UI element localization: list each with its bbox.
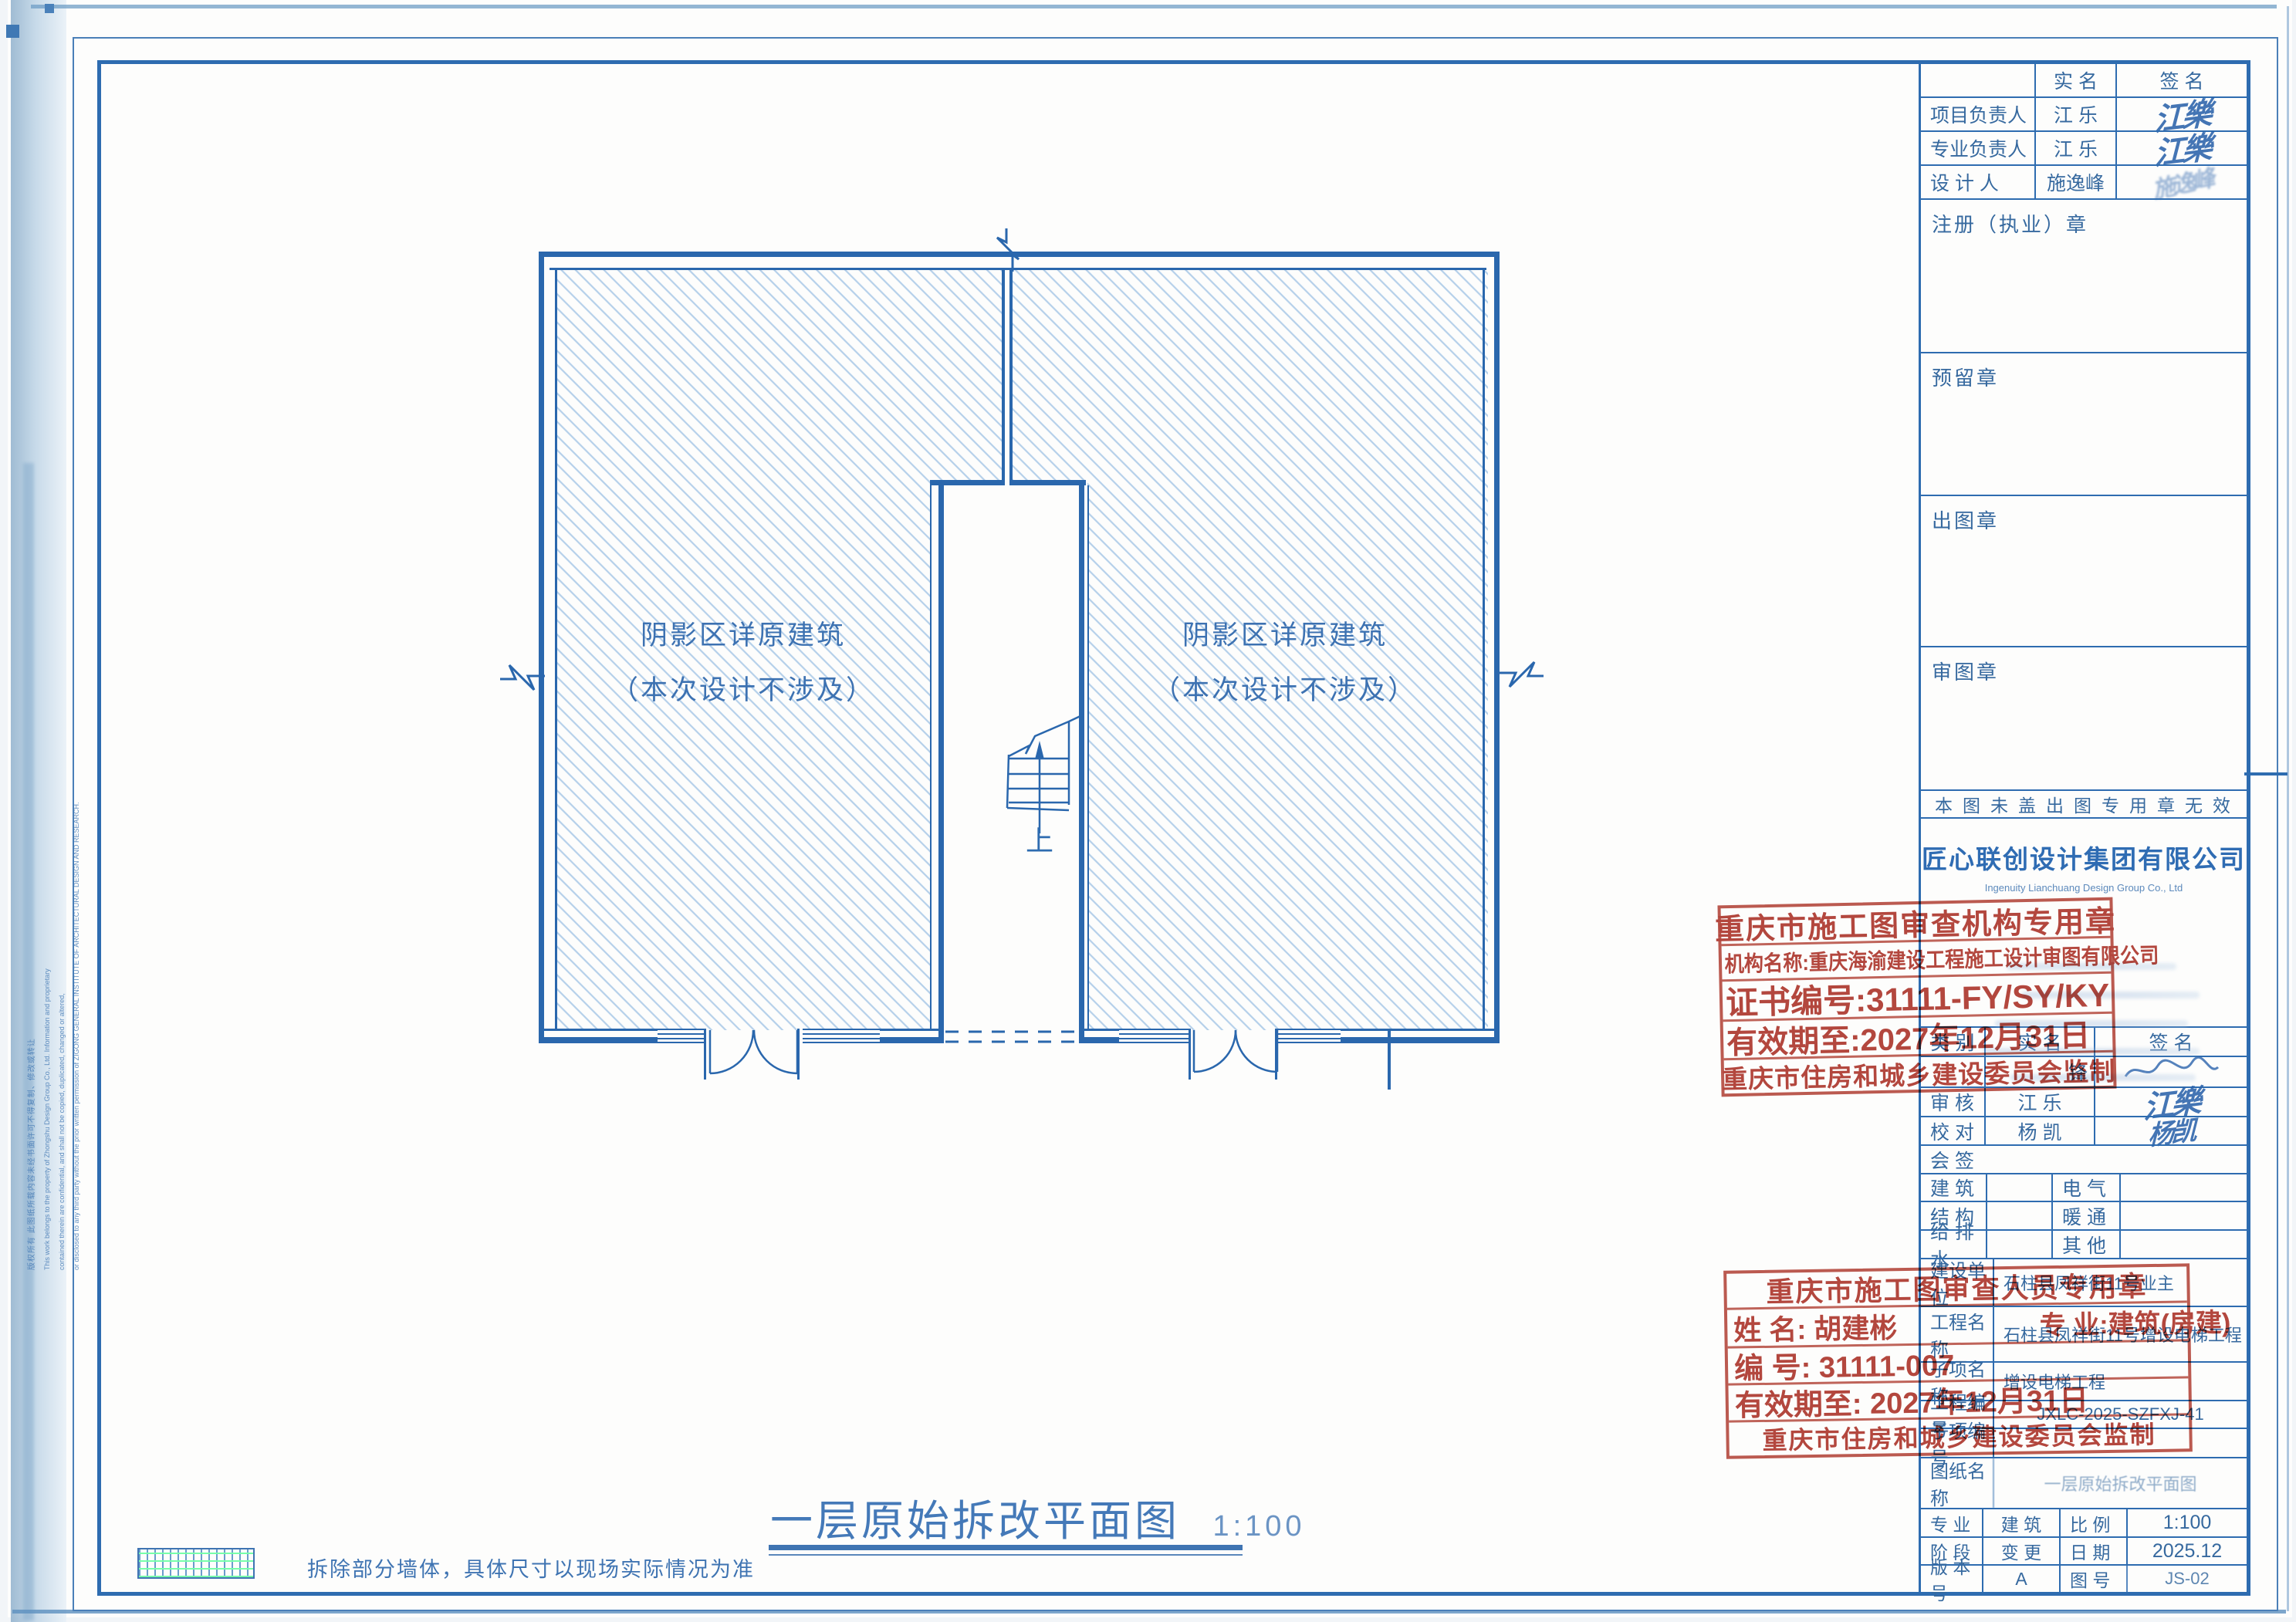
discipline-value bbox=[1986, 1231, 2051, 1258]
spec-value: 建 筑 bbox=[1982, 1509, 2059, 1536]
review-row-name: 杨 凯 bbox=[1984, 1117, 2094, 1144]
reserved-seal-label: 预留章 bbox=[1932, 363, 1999, 391]
break-symbol-left bbox=[500, 665, 545, 690]
discipline-label: 建 筑 bbox=[1921, 1174, 1986, 1201]
double-door-left bbox=[710, 1030, 797, 1073]
sign-row-designer: 设 计 人 施逸峰 施逸峰 bbox=[1921, 164, 2247, 198]
break-symbol-right bbox=[1499, 662, 1544, 687]
discipline-label: 给 排 水 bbox=[1921, 1231, 1986, 1258]
discipline-label: 其 他 bbox=[2051, 1231, 2119, 1258]
stair bbox=[1007, 715, 1084, 833]
agency-stamp-title: 重庆市施工图审查机构专用章 bbox=[1721, 901, 2111, 944]
copyright-en-line1: This work belongs to the property of Zho… bbox=[43, 838, 51, 1270]
spec-row-version-sheetno: 版 本 号 A 图 号 JS-02 bbox=[1921, 1564, 2247, 1592]
spec-value: JS-02 bbox=[2126, 1566, 2247, 1592]
project-row-sheet-name: 图纸名称 一层原始拆改平面图 bbox=[1921, 1457, 2247, 1508]
discipline-value bbox=[2119, 1231, 2247, 1258]
project-label: 图纸名称 bbox=[1921, 1458, 1993, 1508]
reserved-seal-box: 预留章 bbox=[1921, 352, 2247, 495]
sign-row-label: 设 计 人 bbox=[1921, 166, 2034, 198]
double-door-right bbox=[1194, 1030, 1277, 1072]
joint-sign-label: 会 签 bbox=[1921, 1146, 2247, 1173]
review-row-label: 校 对 bbox=[1921, 1117, 1984, 1144]
centering-tick bbox=[2244, 772, 2288, 776]
drawing-title-text: 一层原始拆改平面图 bbox=[770, 1497, 1180, 1545]
region-note-right-line1: 阴影区详原建筑 bbox=[1182, 613, 1388, 653]
discipline-label: 暖 通 bbox=[2051, 1202, 2119, 1229]
personnel-review-stamp: 重庆市施工图审查人员专用章 姓 名: 胡建彬 专 业:建筑(房建) 编 号: 3… bbox=[1723, 1263, 2193, 1458]
review-seal-label: 审图章 bbox=[1932, 657, 1999, 685]
scan-edge-left bbox=[11, 0, 66, 1622]
spec-label: 比 例 bbox=[2059, 1509, 2126, 1536]
discipline-value bbox=[1986, 1202, 2051, 1229]
sign-row-label: 项目负责人 bbox=[1921, 98, 2034, 130]
registration-seal-box: 注册（执业）章 bbox=[1921, 198, 2247, 352]
registration-seal-label: 注册（执业）章 bbox=[1932, 209, 2088, 238]
company-name-en: Ingenuity Lianchuang Design Group Co., L… bbox=[1921, 882, 2247, 894]
sign-row-name: 江 乐 bbox=[2034, 98, 2115, 130]
scan-corner-mark bbox=[6, 25, 19, 38]
personnel-stamp-major: 专 业:建筑(房建) bbox=[2039, 1301, 2230, 1342]
sign-header-realname: 实 名 bbox=[2034, 64, 2115, 96]
discipline-row-arch-elec: 建 筑 电 气 bbox=[1921, 1173, 2247, 1201]
joint-sign-row: 会 签 bbox=[1921, 1144, 2247, 1173]
personnel-stamp-title: 重庆市施工图审查人员专用章 bbox=[1726, 1266, 2187, 1307]
discipline-value bbox=[1986, 1174, 2051, 1201]
discipline-row-plumb-other: 给 排 水 其 他 bbox=[1921, 1229, 2247, 1258]
copyright-en-line2: contained therein are confidential, and … bbox=[58, 838, 66, 1270]
review-row-proofreader: 校 对 杨 凯 杨凯 bbox=[1921, 1116, 2247, 1144]
stair-direction-arrow bbox=[1035, 741, 1044, 759]
copyright-en-line3: or disclosed to any third party without … bbox=[73, 838, 80, 1270]
copyright-cn: 版权所有 此图纸所载内容未经书面许可不得复制、修改或转让 bbox=[25, 838, 36, 1270]
drawing-title: 一层原始拆改平面图 1:100 bbox=[770, 1486, 1306, 1548]
agency-stamp-footer: 重庆市住房和城乡建设委员会监制 bbox=[1724, 1050, 2114, 1094]
discipline-value bbox=[2119, 1202, 2247, 1229]
title-underline-thick bbox=[769, 1545, 1243, 1550]
title-underline-thin bbox=[769, 1554, 1243, 1556]
agency-review-stamp: 重庆市施工图审查机构专用章 机构名称:重庆海渝建设工程施工设计审图有限公司 证书… bbox=[1717, 897, 2116, 1097]
legend-note: 拆除部分墙体，具体尺寸以现场实际情况为准 bbox=[307, 1553, 755, 1583]
region-note-left-line2: （本次设计不涉及） bbox=[611, 668, 875, 708]
copyright-margin-note: 版权所有 此图纸所载内容未经书面许可不得复制、修改或转让 This work b… bbox=[25, 838, 80, 1270]
break-symbol-top bbox=[997, 228, 1019, 272]
spec-row-discipline-scale: 专 业 建 筑 比 例 1:100 bbox=[1921, 1508, 2247, 1536]
review-row-name: 江 乐 bbox=[1984, 1088, 2094, 1116]
discipline-value bbox=[2119, 1174, 2247, 1201]
company-name-cn: 匠心联创设计集团有限公司 bbox=[1921, 839, 2247, 876]
sign-header-blank bbox=[1921, 64, 2034, 96]
sign-row-name: 江 乐 bbox=[2034, 132, 2115, 164]
no-seal-invalid-notice: 本图未盖出图专用章无效 bbox=[1921, 789, 2247, 817]
issue-seal-box: 出图章 bbox=[1921, 495, 2247, 646]
spec-value: 2025.12 bbox=[2126, 1538, 2247, 1564]
project-value: 一层原始拆改平面图 bbox=[1993, 1458, 2247, 1508]
sign-row-label: 专业负责人 bbox=[1921, 132, 2034, 164]
discipline-label: 电 气 bbox=[2051, 1174, 2119, 1201]
drawing-title-scale: 1:100 bbox=[1212, 1510, 1305, 1543]
spec-value: 变 更 bbox=[1982, 1538, 2059, 1564]
scan-edge-right bbox=[2287, 6, 2289, 1611]
scan-corner-mark bbox=[45, 4, 54, 13]
stair-up-label: 上 bbox=[1026, 825, 1053, 857]
sign-row-name: 施逸峰 bbox=[2034, 166, 2115, 198]
sign-row-discipline-lead: 专业负责人 江 乐 江樂 bbox=[1921, 130, 2247, 164]
scan-edge-top bbox=[31, 5, 2277, 8]
demolished-wall-hatch-swatch bbox=[137, 1548, 255, 1579]
review-seal-box: 审图章 bbox=[1921, 646, 2247, 789]
spec-label: 图 号 bbox=[2059, 1566, 2126, 1592]
spec-value: 1:100 bbox=[2126, 1509, 2247, 1536]
spec-label: 专 业 bbox=[1921, 1509, 1982, 1536]
issue-seal-label: 出图章 bbox=[1932, 505, 1999, 534]
demolished-opening-dashed-lines bbox=[945, 1032, 1077, 1042]
spec-label: 日 期 bbox=[2059, 1538, 2126, 1564]
region-note-right-line2: （本次设计不涉及） bbox=[1153, 668, 1417, 708]
region-note-left-line1: 阴影区详原建筑 bbox=[641, 613, 846, 653]
spec-label: 版 本 号 bbox=[1921, 1566, 1982, 1592]
spec-value: A bbox=[1982, 1566, 2059, 1592]
